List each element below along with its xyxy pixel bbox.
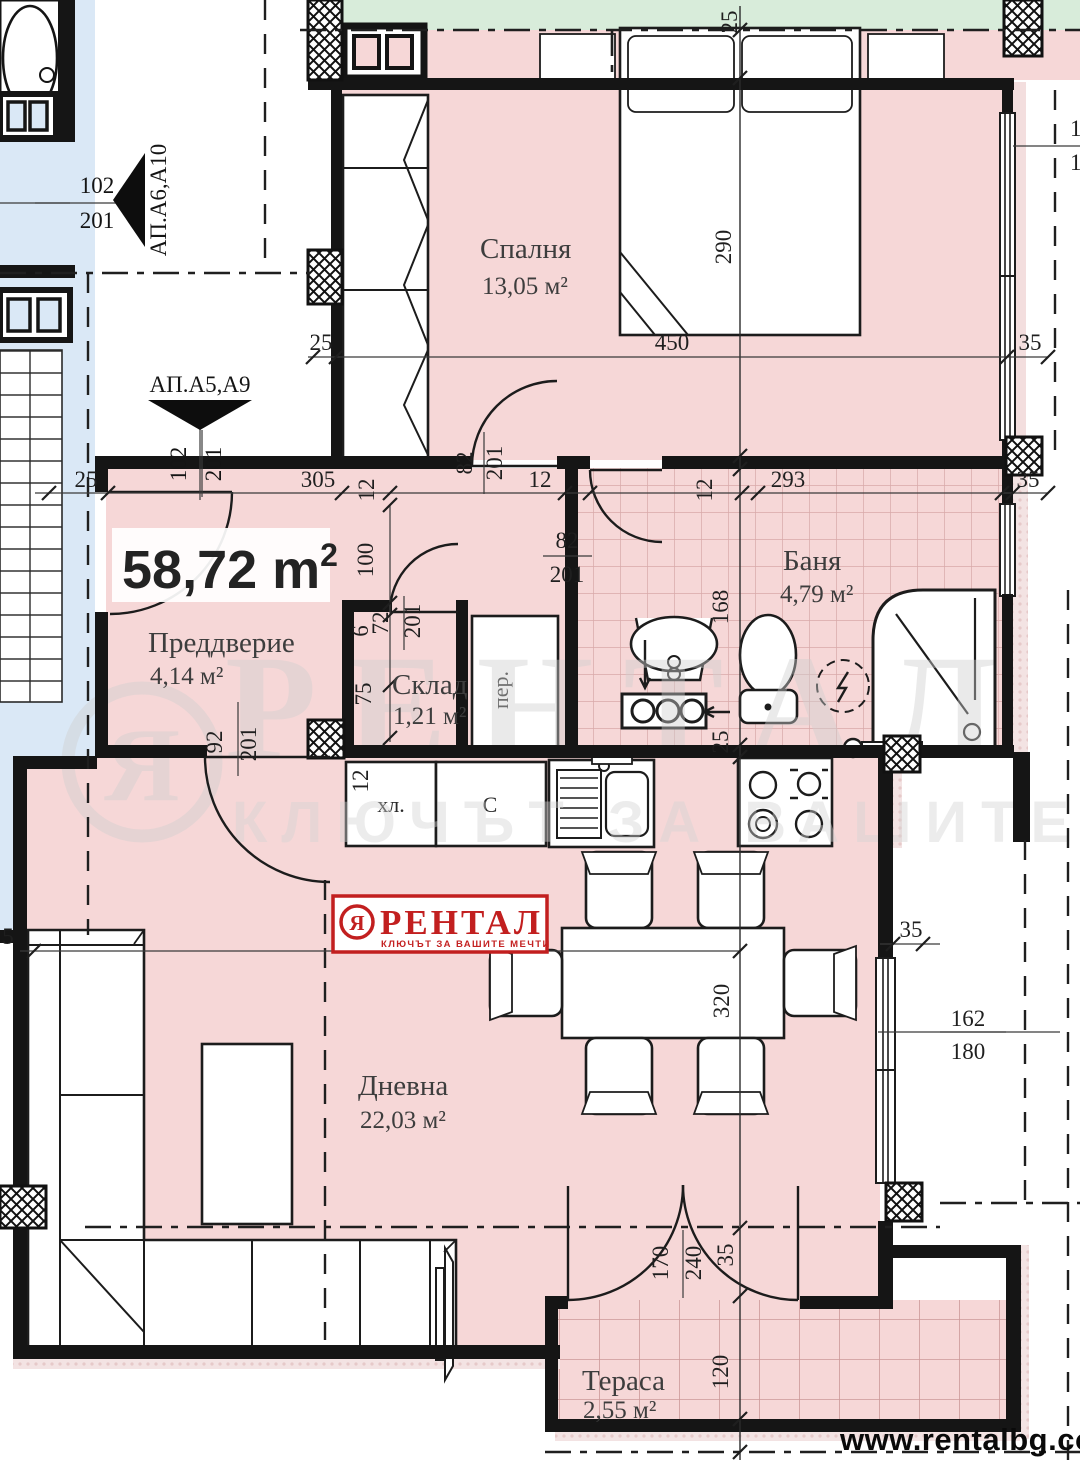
dim: 15 <box>1070 116 1080 141</box>
dim: 35 <box>900 917 923 942</box>
marker-a5-num: 102 <box>166 447 191 482</box>
dim: 25 <box>717 11 742 34</box>
storage-name: Склад <box>392 669 468 701</box>
floor-plan-page: пер. <box>0 0 1080 1467</box>
hall-name: Преддверие <box>148 627 295 659</box>
terrace-name: Тераса <box>582 1365 665 1397</box>
living-window <box>876 958 895 1183</box>
floor-plan-drawing: пер. <box>0 0 1080 1467</box>
dining-table <box>562 928 784 1038</box>
marker-a5-label: АП.А5,А9 <box>150 372 251 397</box>
coffee-table <box>202 1044 292 1224</box>
hall-area: 4,14 м² <box>150 663 223 690</box>
dim: 72 <box>368 612 393 635</box>
watermark-tagline: КЛЮЧЪТ ЗА ВАШИТЕ МЕЧТИ <box>232 790 1080 855</box>
dim: 293 <box>771 467 806 492</box>
marker-a5-den: 201 <box>201 447 226 482</box>
dim: 201 <box>236 727 261 762</box>
dim: 12 <box>529 467 552 492</box>
dim: 12 <box>348 770 373 793</box>
dim: 12 <box>692 479 717 502</box>
logo-tagline: КЛЮЧЪТ ЗА ВАШИТЕ МЕЧТИ <box>381 939 551 950</box>
bedroom-area: 13,05 м² <box>482 273 568 300</box>
wardrobe <box>343 95 428 460</box>
svg-text:Я: Я <box>104 706 180 823</box>
dim: 82 <box>452 452 477 475</box>
dim: 180 <box>951 1039 986 1064</box>
marker-a6-den: 201 <box>80 208 115 233</box>
bathroom-area: 4,79 м² <box>780 581 853 608</box>
storage-area: 1,21 м² <box>393 703 466 730</box>
living-name: Дневна <box>358 1070 448 1102</box>
dim: 100 <box>353 543 378 578</box>
dim: 35 <box>713 1244 738 1267</box>
bathroom-window <box>1000 504 1015 596</box>
dim: 25 <box>310 330 333 355</box>
total-area-text: 58,72 m2 <box>122 537 338 600</box>
bedroom-name: Спалня <box>480 233 571 265</box>
tv-unit <box>436 1248 453 1380</box>
dim: 201 <box>482 446 507 481</box>
dim: 240 <box>681 1246 706 1281</box>
logo-brand: РЕНТАЛ <box>380 903 543 942</box>
dim: 75 <box>351 683 376 706</box>
dim: 12 <box>354 479 379 502</box>
bedroom-cabinet <box>344 26 424 78</box>
dim: 201 <box>550 562 585 587</box>
dim: 290 <box>711 230 736 265</box>
bathroom-name: Баня <box>783 545 841 577</box>
dim: 170 <box>648 1246 673 1281</box>
bedroom-window <box>1000 113 1015 440</box>
stairs <box>0 350 62 702</box>
living-area: 22,03 м² <box>360 1107 446 1134</box>
terrace-area: 2,55 м² <box>583 1397 656 1424</box>
marker-a6-label: АП.А6,А10 <box>146 144 171 256</box>
dim: 92 <box>202 731 227 754</box>
dim: 162 <box>951 1006 986 1031</box>
dim: 25 <box>75 467 98 492</box>
website-url: www.rentalbg.com <box>839 1422 1080 1457</box>
dim: 35 <box>1017 467 1040 492</box>
dim: 320 <box>709 984 734 1019</box>
dim: 201 <box>400 604 425 639</box>
dim: 35 <box>1019 330 1042 355</box>
dim: 120 <box>708 1355 733 1390</box>
dim: 5 <box>2 924 14 949</box>
dim: 82 <box>556 528 579 553</box>
dim: 168 <box>708 590 733 625</box>
dim: 305 <box>301 467 336 492</box>
total-area: 58,72 m2 <box>112 528 338 602</box>
agency-logo: Я РЕНТАЛ КЛЮЧЪТ ЗА ВАШИТЕ МЕЧТИ <box>333 896 551 952</box>
logo-symbol: Я <box>349 911 364 935</box>
marker-a6-num: 102 <box>80 173 115 198</box>
dim: 18 <box>1070 150 1080 175</box>
dim: 25 <box>708 731 733 754</box>
dim: 450 <box>655 330 690 355</box>
